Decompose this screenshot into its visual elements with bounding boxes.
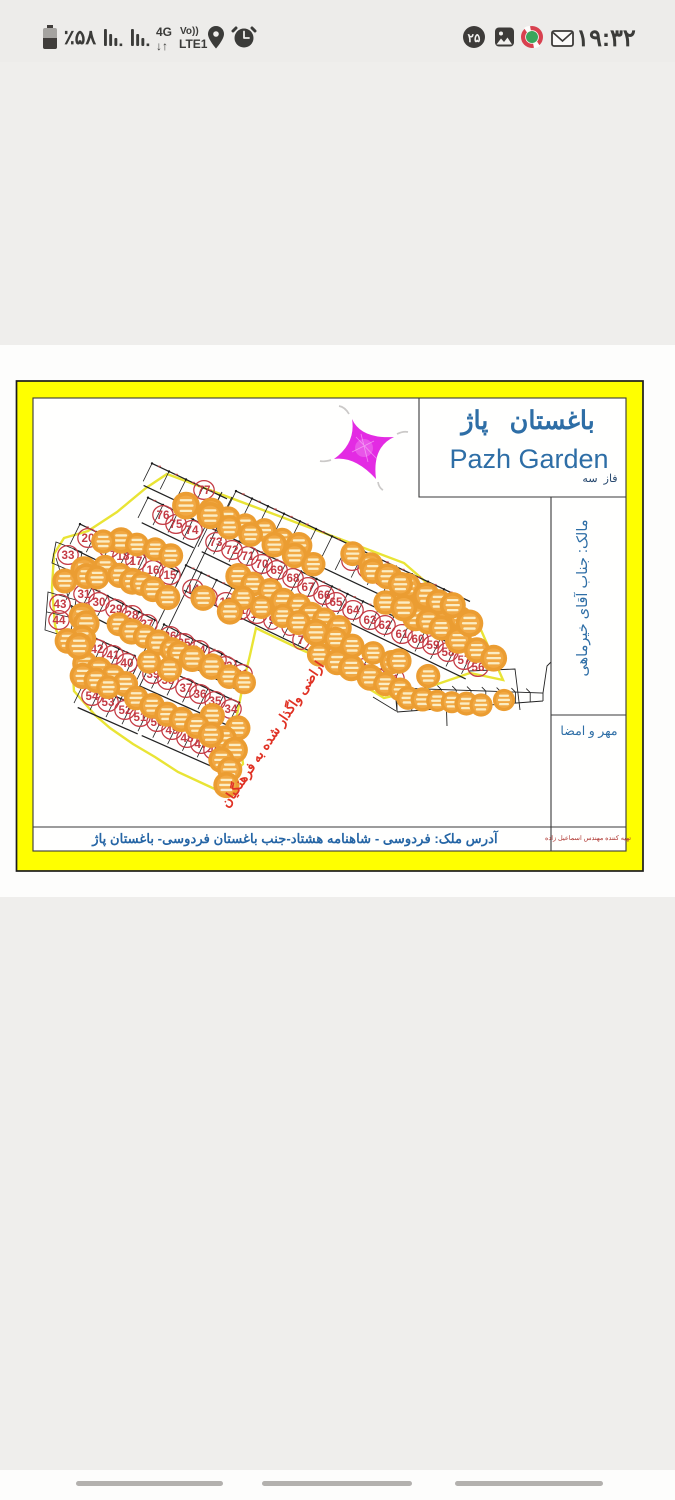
svg-text:37: 37 — [180, 682, 193, 695]
svg-text:44: 44 — [53, 614, 66, 627]
svg-text:77: 77 — [198, 484, 211, 497]
svg-text:62: 62 — [379, 619, 392, 632]
svg-text:61: 61 — [396, 628, 409, 641]
svg-text:41: 41 — [107, 649, 120, 662]
svg-text:تهیه کننده مهندس اسماعیل زاده: تهیه کننده مهندس اسماعیل زاده — [545, 834, 631, 842]
svg-text:75: 75 — [170, 518, 183, 531]
svg-text:33: 33 — [62, 549, 75, 562]
svg-text:Pazh Garden: Pazh Garden — [449, 444, 608, 474]
svg-text:76: 76 — [157, 509, 170, 522]
svg-text:74: 74 — [186, 524, 199, 537]
svg-text:64: 64 — [347, 604, 360, 617]
svg-text:65: 65 — [330, 596, 343, 609]
svg-text:34: 34 — [225, 703, 238, 716]
svg-text:67: 67 — [302, 581, 315, 594]
svg-text:مالک: جناب آقای خیرماهی: مالک: جناب آقای خیرماهی — [573, 519, 591, 676]
svg-text:72: 72 — [226, 544, 239, 557]
svg-text:43: 43 — [54, 598, 67, 611]
svg-text:71: 71 — [242, 550, 255, 563]
svg-text:69: 69 — [271, 564, 284, 577]
svg-text:فاز سه: فاز سه — [582, 473, 617, 485]
svg-text:15: 15 — [164, 569, 177, 582]
svg-text:73: 73 — [210, 536, 223, 549]
svg-text:17: 17 — [130, 555, 143, 568]
svg-text:مهر و امضا: مهر و امضا — [560, 724, 617, 739]
svg-text:40: 40 — [121, 657, 134, 670]
svg-text:30: 30 — [93, 596, 106, 609]
svg-text:باغستان پاژ: باغستان پاژ — [459, 407, 595, 436]
svg-text:آدرس ملک: فردوسی - شاهنامه ه: آدرس ملک: فردوسی - شاهنامه هشتاد-جنب باغ… — [91, 830, 499, 847]
